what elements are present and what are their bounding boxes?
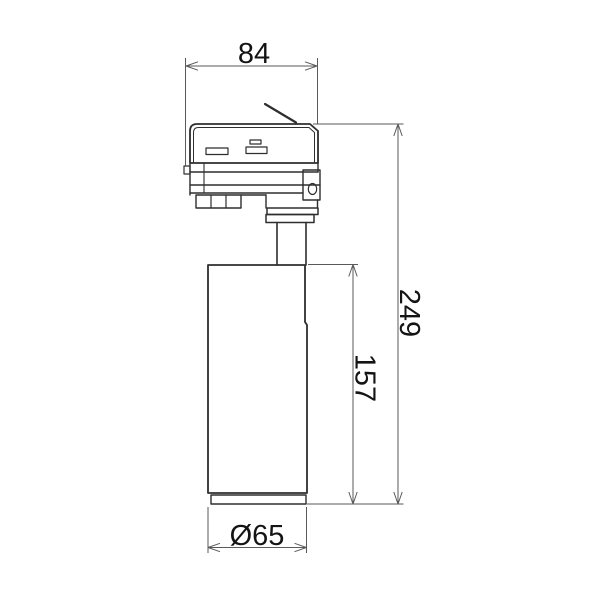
lamp-body-outline	[208, 265, 307, 493]
adapter-slot-right	[246, 147, 267, 154]
dim-width-label: 84	[238, 38, 270, 70]
dimension-annotations	[186, 58, 404, 553]
stem-flange-upper	[267, 208, 318, 215]
adapter-slot-small	[250, 140, 261, 144]
dim-body-height-label: 157	[349, 354, 381, 402]
dim-diameter-label: Ø65	[230, 520, 285, 552]
contact-block	[196, 195, 241, 208]
dimension-drawing-canvas: 84 249 157 Ø65	[0, 0, 600, 600]
technical-drawing-svg: 84 249 157 Ø65	[0, 0, 600, 600]
lamp-body-bottom-rim	[211, 495, 306, 504]
fixture-outline	[184, 104, 320, 504]
release-lever-line	[265, 104, 296, 123]
adapter-slot-left	[206, 148, 228, 155]
stem-flange-lower	[266, 215, 314, 223]
dim-total-height-label: 249	[393, 289, 425, 337]
adapter-left-tab	[184, 166, 190, 174]
track-adapter-inner-line	[194, 128, 315, 164]
